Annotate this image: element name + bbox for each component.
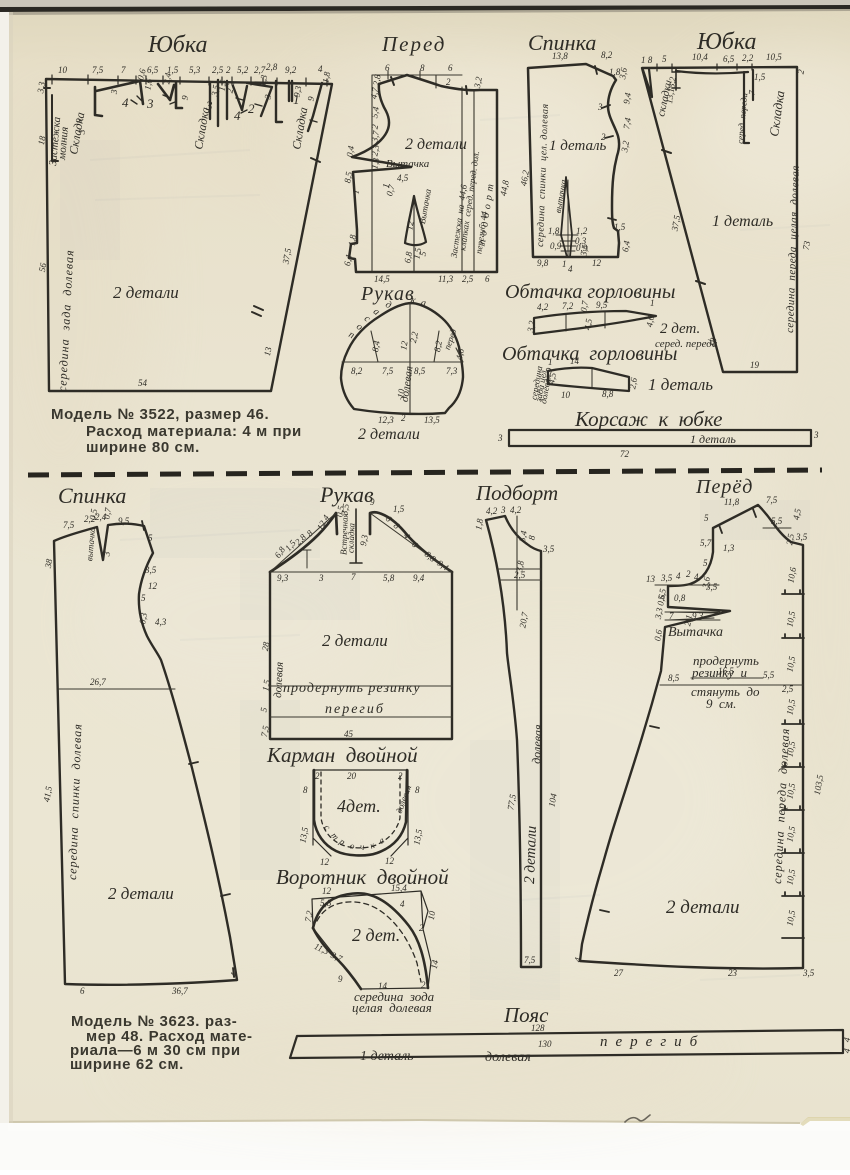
svg-text:3: 3	[497, 433, 503, 443]
svg-text:1: 1	[562, 259, 567, 269]
svg-text:целая долевая: целая долевая	[352, 1000, 432, 1015]
svg-text:4дет.: 4дет.	[337, 796, 381, 816]
svg-text:72: 72	[620, 449, 630, 459]
svg-text:9 см.: 9 см.	[706, 696, 736, 711]
svg-text:23: 23	[728, 968, 738, 978]
svg-text:2 детали: 2 детали	[108, 884, 174, 903]
svg-text:1,3: 1,3	[723, 543, 735, 553]
svg-text:5: 5	[148, 533, 153, 543]
svg-text:10,4: 10,4	[692, 52, 708, 62]
svg-text:7,5: 7,5	[524, 955, 536, 965]
svg-text:9,2: 9,2	[285, 65, 297, 75]
svg-text:13,5: 13,5	[424, 415, 440, 425]
svg-text:2: 2	[401, 413, 406, 423]
svg-text:3,5: 3,5	[802, 968, 815, 978]
svg-text:9,3: 9,3	[358, 533, 370, 546]
svg-text:12,3: 12,3	[378, 415, 394, 425]
svg-text:5: 5	[704, 513, 709, 523]
svg-text:2,8: 2,8	[266, 62, 278, 72]
svg-text:2: 2	[446, 77, 451, 87]
svg-text:2,5: 2,5	[514, 570, 526, 580]
svg-text:2 дет.: 2 дет.	[352, 925, 400, 945]
svg-text:3,5: 3,5	[542, 544, 555, 554]
svg-text:1 деталь: 1 деталь	[360, 1049, 414, 1064]
svg-text:1 деталь: 1 деталь	[690, 432, 736, 446]
svg-text:10,5: 10,5	[766, 52, 782, 62]
svg-text:13: 13	[646, 574, 656, 584]
svg-text:13,8: 13,8	[552, 51, 568, 61]
svg-text:4,6: 4,6	[644, 314, 656, 327]
svg-text:12: 12	[592, 258, 602, 268]
svg-text:27: 27	[614, 968, 624, 978]
svg-text:Модель № 3522, размер 46.: Модель № 3522, размер 46.	[51, 406, 269, 423]
svg-text:2,7: 2,7	[254, 65, 266, 75]
svg-text:0,7: 0,7	[578, 299, 590, 312]
svg-text:20: 20	[347, 771, 357, 781]
svg-text:1,3: 1,3	[369, 156, 381, 169]
svg-text:1,8: 1,8	[548, 226, 560, 236]
svg-text:5: 5	[141, 593, 146, 603]
svg-text:5,3: 5,3	[189, 65, 201, 75]
svg-text:2: 2	[315, 771, 320, 781]
svg-text:1,8: 1,8	[320, 70, 332, 83]
svg-text:1,8: 1,8	[473, 517, 485, 530]
svg-text:6,5: 6,5	[723, 54, 735, 64]
svg-text:ширине 80 см.: ширине 80 см.	[86, 439, 200, 456]
svg-text:19: 19	[750, 360, 760, 370]
svg-text:5,8: 5,8	[383, 573, 395, 583]
svg-text:9,4: 9,4	[413, 573, 425, 583]
svg-text:1,5: 1,5	[393, 504, 405, 514]
svg-text:2,2: 2,2	[408, 330, 420, 343]
svg-text:3: 3	[318, 573, 324, 583]
svg-text:7: 7	[121, 65, 126, 75]
svg-text:2,2: 2,2	[225, 81, 237, 94]
svg-text:1,3: 1,3	[257, 73, 269, 86]
svg-text:2,6: 2,6	[627, 376, 639, 389]
svg-text:1: 1	[548, 357, 553, 367]
svg-text:2: 2	[419, 923, 424, 933]
svg-text:7,5: 7,5	[92, 65, 104, 75]
svg-text:3: 3	[500, 505, 506, 515]
svg-text:16,5: 16,5	[718, 666, 734, 676]
svg-text:Подборт: Подборт	[475, 481, 558, 505]
svg-text:1 8: 1 8	[641, 55, 653, 65]
svg-text:3: 3	[205, 98, 213, 113]
svg-text:14: 14	[570, 356, 580, 366]
svg-text:Расход материала: 4 м при: Расход материала: 4 м при	[86, 423, 302, 440]
svg-text:8: 8	[420, 63, 425, 73]
svg-text:Перёд: Перёд	[695, 476, 753, 498]
svg-text:2: 2	[398, 771, 403, 781]
svg-text:1 деталь: 1 деталь	[712, 213, 773, 230]
svg-text:12: 12	[322, 886, 332, 896]
svg-text:1,5: 1,5	[260, 678, 272, 691]
svg-text:8: 8	[415, 785, 420, 795]
svg-text:3,5: 3,5	[144, 565, 157, 575]
svg-text:7: 7	[351, 572, 356, 582]
svg-text:5,5: 5,5	[771, 516, 783, 526]
svg-text:4,6: 4,6	[454, 347, 466, 360]
svg-text:7,2: 7,2	[303, 909, 315, 922]
svg-text:7,2: 7,2	[562, 301, 574, 311]
svg-text:9: 9	[370, 497, 375, 507]
svg-text:0,7: 0,7	[101, 506, 113, 519]
svg-text:8,2: 8,2	[351, 366, 363, 376]
svg-text:1 деталь: 1 деталь	[549, 138, 607, 154]
svg-text:4: 4	[122, 95, 129, 110]
svg-text:2 детали: 2 детали	[405, 136, 467, 153]
svg-text:0,6: 0,6	[652, 628, 664, 641]
svg-text:4: 4	[400, 899, 405, 909]
svg-text:3: 3	[597, 102, 603, 112]
svg-text:долевая: долевая	[485, 1050, 531, 1065]
svg-text:8: 8	[303, 785, 308, 795]
svg-text:6,4: 6,4	[342, 253, 354, 266]
svg-text:ширине 62 см.: ширине 62 см.	[70, 1056, 184, 1073]
svg-text:5,7: 5,7	[700, 538, 712, 548]
svg-text:5: 5	[703, 558, 708, 568]
svg-text:0,9: 0,9	[550, 241, 562, 251]
svg-text:1,5: 1,5	[754, 72, 766, 82]
svg-text:54: 54	[138, 378, 148, 388]
svg-text:ч: ч	[360, 842, 364, 852]
svg-text:2: 2	[686, 569, 691, 579]
svg-text:2,5: 2,5	[462, 274, 474, 284]
svg-text:3: 3	[146, 96, 154, 111]
svg-text:9,8: 9,8	[537, 258, 549, 268]
svg-text:6: 6	[385, 63, 390, 73]
svg-text:4,2: 4,2	[510, 505, 522, 515]
svg-text:3,5: 3,5	[795, 532, 808, 542]
svg-text:7: 7	[669, 611, 674, 621]
svg-text:Карман двойной: Карман двойной	[266, 743, 418, 767]
svg-text:4: 4	[234, 108, 241, 123]
svg-text:5: 5	[662, 54, 667, 64]
svg-text:7,5: 7,5	[259, 724, 271, 737]
svg-text:10: 10	[58, 65, 68, 75]
svg-text:0,4: 0,4	[344, 144, 356, 157]
svg-text:2,5: 2,5	[782, 684, 794, 694]
svg-text:8,2: 8,2	[601, 50, 613, 60]
svg-text:4: 4	[676, 571, 681, 581]
svg-text:7,4: 7,4	[621, 116, 633, 129]
svg-text:2 детали: 2 детали	[358, 426, 420, 443]
svg-text:Юбка: Юбка	[147, 32, 207, 58]
svg-text:Рукав: Рукав	[319, 482, 374, 507]
svg-text:4,2: 4,2	[537, 302, 549, 312]
svg-text:2: 2	[248, 101, 255, 116]
svg-text:9,4: 9,4	[621, 91, 633, 104]
svg-text:2 детали: 2 детали	[113, 283, 179, 302]
svg-text:5,2: 5,2	[237, 65, 249, 75]
svg-text:15,4: 15,4	[391, 883, 407, 893]
svg-text:7,5: 7,5	[63, 520, 75, 530]
svg-text:7,3: 7,3	[446, 366, 458, 376]
svg-text:8,8: 8,8	[602, 389, 614, 399]
svg-text:9,3: 9,3	[692, 611, 704, 621]
svg-text:130: 130	[538, 1039, 552, 1049]
svg-text:128: 128	[531, 1023, 545, 1033]
svg-text:5,5: 5,5	[763, 670, 775, 680]
svg-text:8,5: 8,5	[414, 366, 426, 376]
svg-text:перегиб: перегиб	[325, 702, 385, 717]
svg-text:4,5: 4,5	[791, 507, 803, 520]
svg-text:2 дет.: 2 дет.	[660, 321, 700, 337]
svg-text:6: 6	[80, 986, 85, 996]
svg-text:10: 10	[561, 390, 571, 400]
svg-text:45: 45	[344, 729, 354, 739]
svg-text:7,5: 7,5	[382, 366, 394, 376]
svg-text:2 детали: 2 детали	[522, 826, 540, 885]
svg-text:12: 12	[148, 581, 158, 591]
svg-text:6,4: 6,4	[620, 239, 632, 252]
svg-text:3,5: 3,5	[660, 573, 673, 583]
svg-text:0,3: 0,3	[137, 611, 149, 624]
svg-text:4,3: 4,3	[155, 617, 167, 627]
svg-text:6,5: 6,5	[147, 65, 159, 75]
svg-text:4,5: 4,5	[397, 173, 409, 183]
svg-text:Спинка: Спинка	[58, 483, 126, 508]
svg-text:9,5: 9,5	[596, 300, 608, 310]
svg-text:0,8: 0,8	[674, 593, 686, 603]
svg-text:1,8: 1,8	[346, 233, 358, 246]
svg-text:3,5: 3,5	[705, 582, 718, 592]
svg-text:6: 6	[448, 63, 453, 73]
svg-text:8,4: 8,4	[370, 339, 382, 352]
svg-text:2,5: 2,5	[212, 65, 224, 75]
svg-text:5,8: 5,8	[320, 898, 332, 908]
svg-text:4,2: 4,2	[486, 506, 498, 516]
svg-text:2 детали: 2 детали	[666, 897, 740, 918]
svg-text:5,4: 5,4	[369, 105, 381, 118]
svg-text:Перед: Перед	[381, 32, 446, 56]
svg-text:2,3: 2,3	[369, 143, 381, 156]
svg-text:8,5: 8,5	[668, 673, 680, 683]
svg-text:11,8: 11,8	[724, 497, 740, 507]
svg-text:11,3: 11,3	[438, 274, 454, 284]
svg-text:1,6: 1,6	[142, 77, 154, 90]
svg-text:долевая: долевая	[529, 724, 545, 764]
svg-text:7,5: 7,5	[766, 495, 778, 505]
svg-text:складка: складка	[345, 522, 356, 553]
svg-text:4: 4	[694, 572, 699, 582]
svg-text:36,7: 36,7	[171, 986, 188, 996]
svg-text:Корсаж к юбке: Корсаж к юбке	[574, 407, 723, 431]
svg-text:3: 3	[813, 430, 819, 440]
svg-text:1,2: 1,2	[576, 226, 588, 236]
svg-text:26,7: 26,7	[90, 677, 106, 687]
svg-text:9,3: 9,3	[292, 85, 304, 98]
svg-text:Воротник двойной: Воротник двойной	[276, 865, 449, 889]
svg-text:8,5: 8,5	[342, 170, 354, 183]
svg-text:2,2: 2,2	[742, 53, 754, 63]
svg-text:4,5: 4,5	[582, 317, 594, 330]
svg-text:1 деталь: 1 деталь	[648, 375, 713, 394]
svg-text:1: 1	[650, 298, 655, 308]
svg-text:9: 9	[338, 974, 343, 984]
svg-text:4: 4	[568, 264, 573, 274]
svg-text:Обтачка горловины: Обтачка горловины	[502, 343, 677, 365]
svg-text:6: 6	[485, 274, 490, 284]
svg-text:перегиб: перегиб	[600, 1034, 705, 1050]
svg-text:1,5: 1,5	[614, 222, 626, 232]
svg-text:2,5: 2,5	[784, 532, 796, 545]
svg-text:Вытачка: Вытачка	[668, 625, 723, 640]
svg-text:2: 2	[226, 65, 231, 75]
svg-text:2 детали: 2 детали	[322, 631, 388, 650]
svg-text:9,3: 9,3	[277, 573, 289, 583]
svg-text:2,4: 2,4	[161, 71, 173, 84]
svg-text:продернуть резинку: продернуть резинку	[283, 681, 421, 696]
svg-text:Вытачка: Вытачка	[386, 158, 430, 170]
svg-text:9,5: 9,5	[118, 516, 130, 526]
